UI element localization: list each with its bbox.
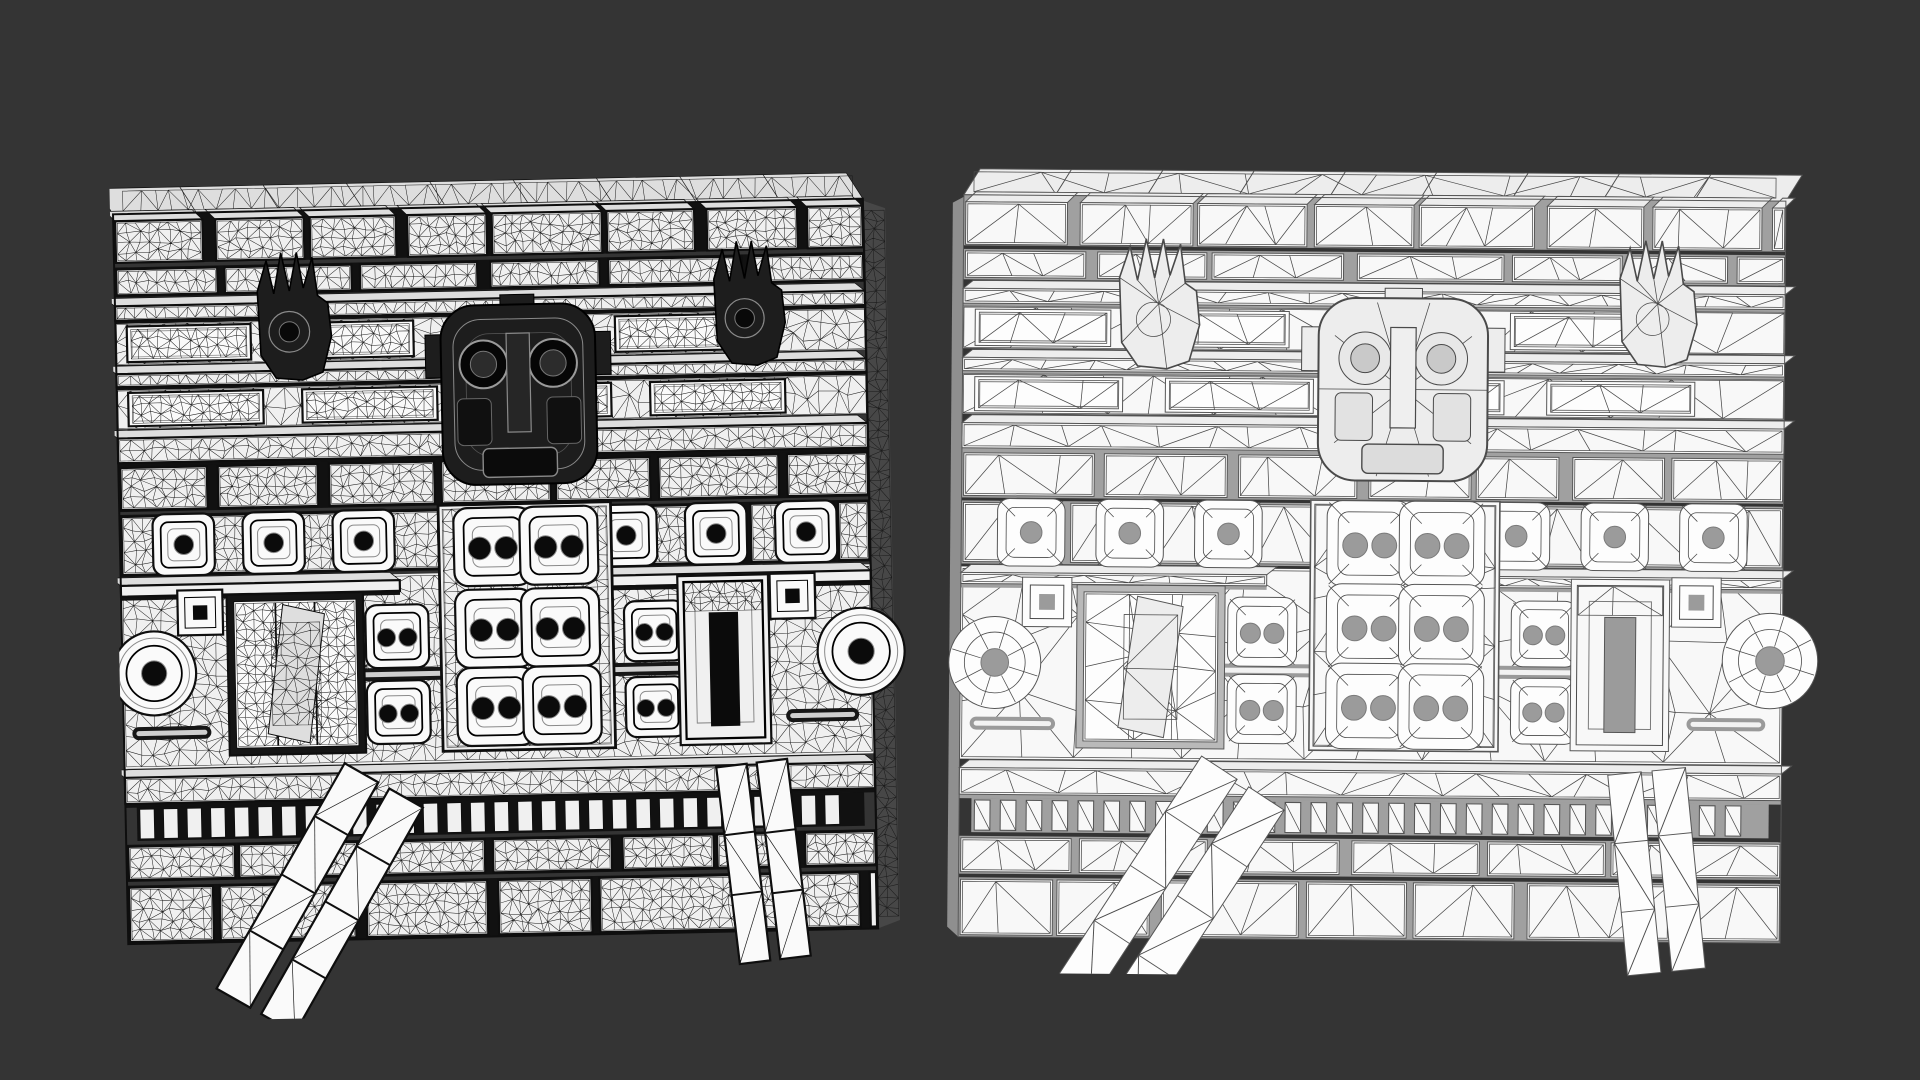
viewport-background — [0, 0, 1920, 1080]
mask-sculpture — [424, 293, 613, 486]
central-glyph-panel — [1309, 500, 1500, 752]
high-poly-model-render — [109, 160, 917, 1022]
low-poly-model-render — [945, 157, 1823, 980]
central-glyph-panel — [438, 502, 616, 752]
mask-sculpture — [1301, 288, 1506, 482]
